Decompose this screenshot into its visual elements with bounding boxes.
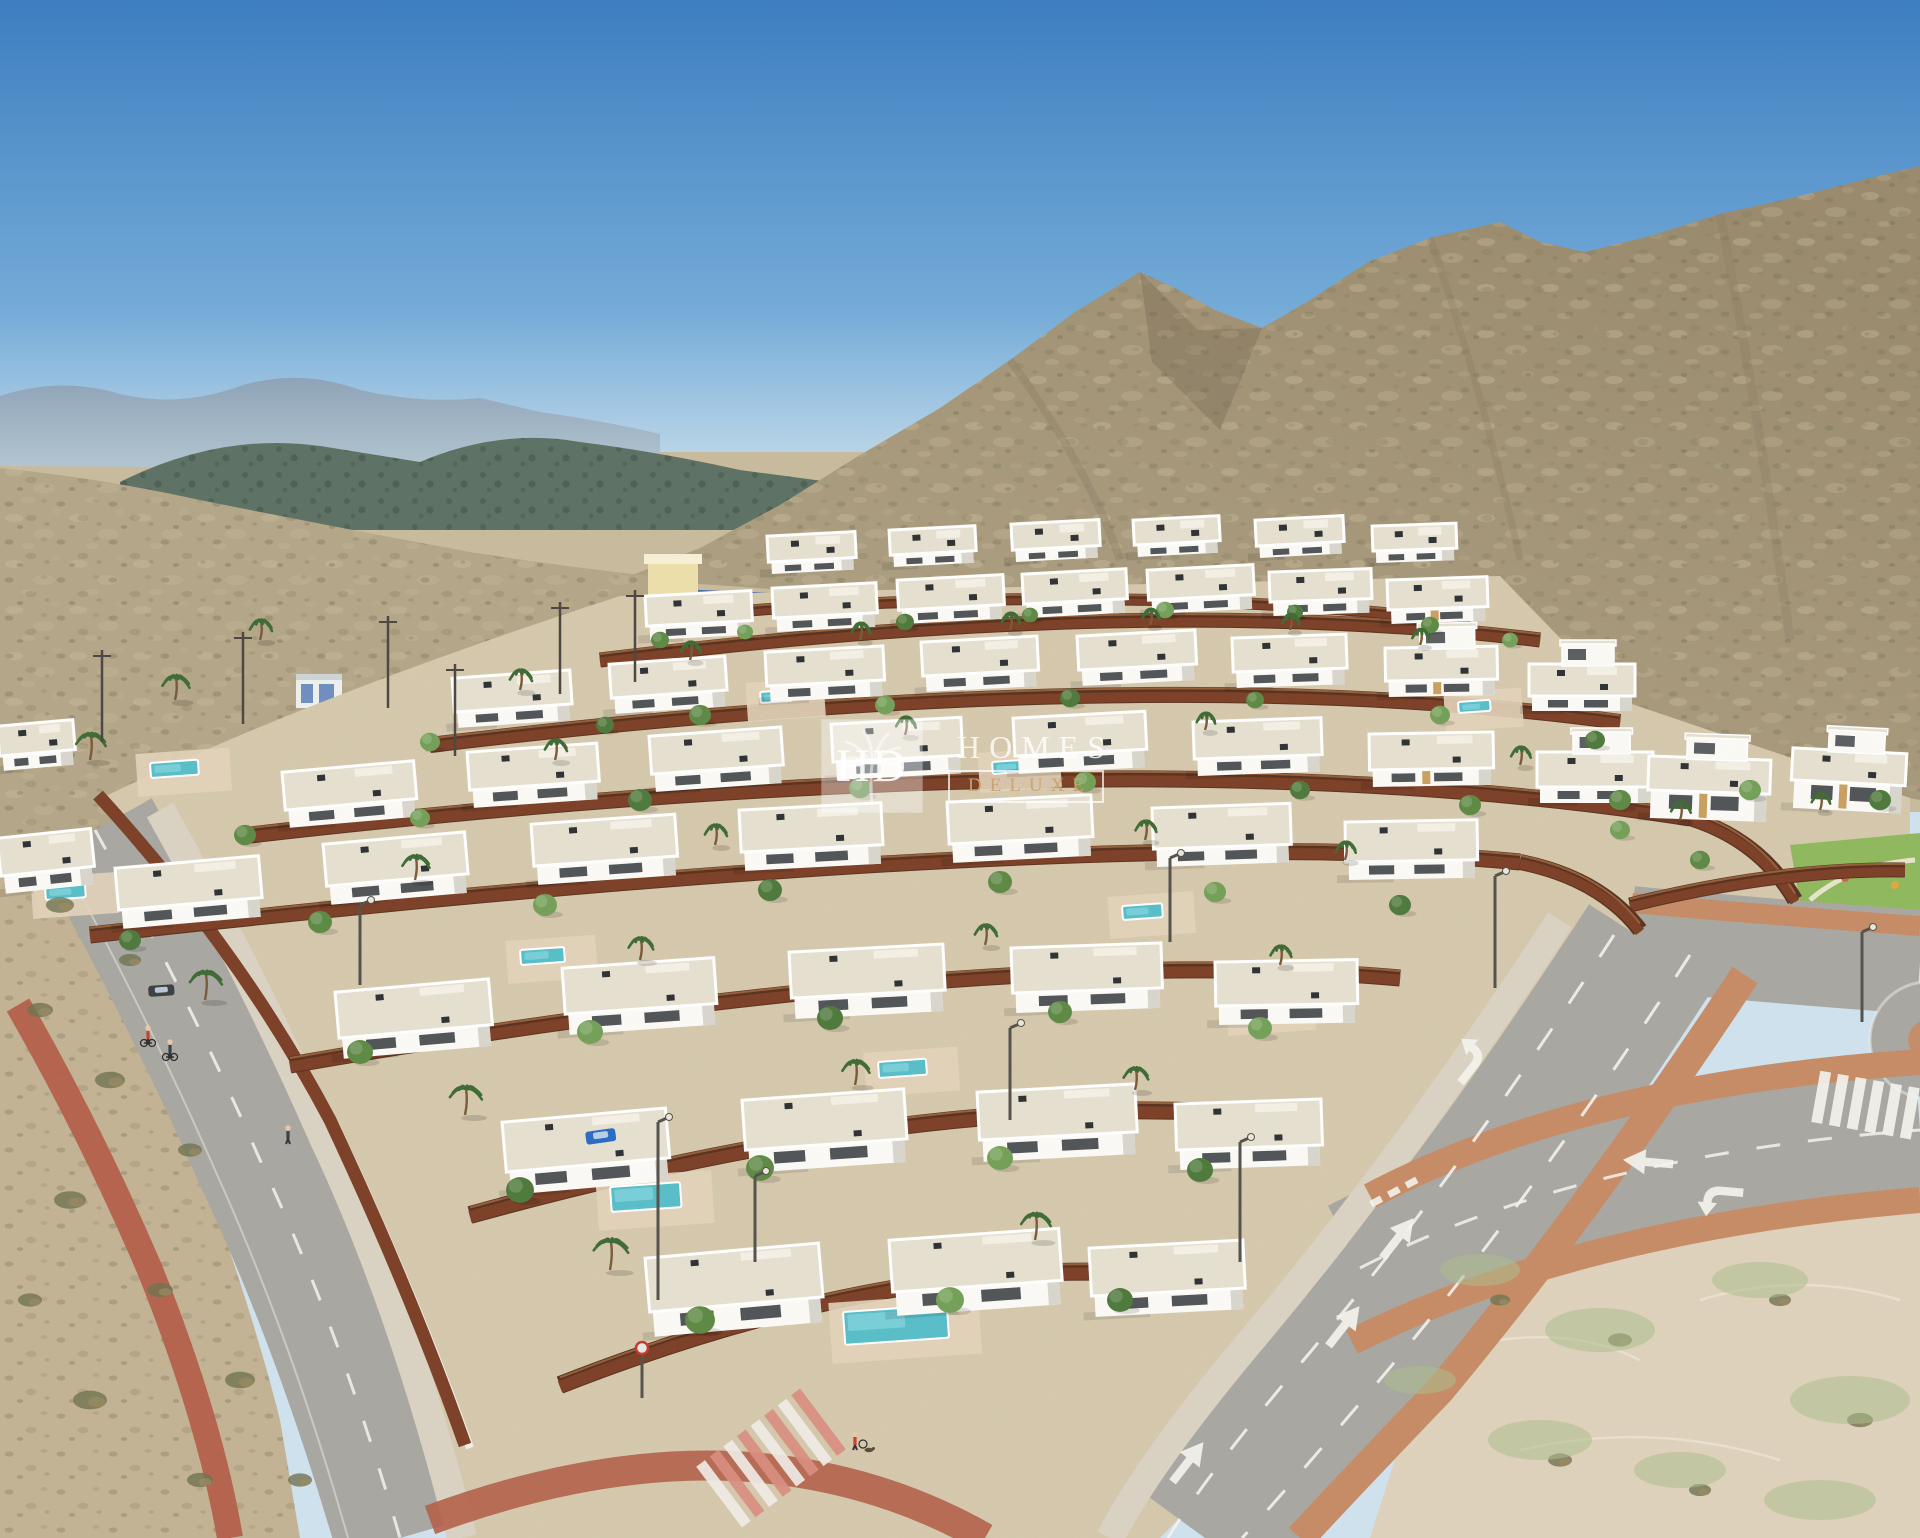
grain-overlay xyxy=(0,430,1920,1538)
aerial-render-image: HD HOMES DELUXE xyxy=(0,0,1920,1538)
